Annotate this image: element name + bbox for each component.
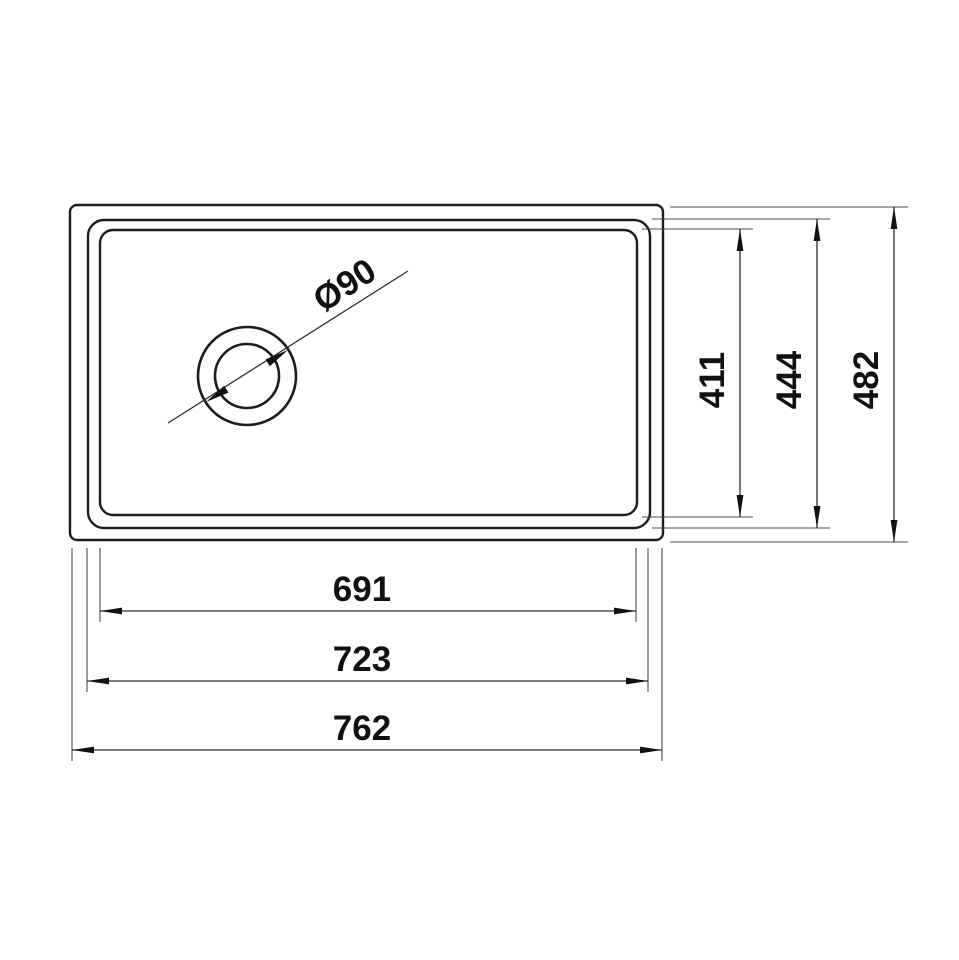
drain-diameter-line [168, 271, 408, 423]
sink-outlines [70, 205, 663, 540]
dim-label-411: 411 [693, 352, 732, 408]
drain-outer-circle [198, 327, 296, 425]
height-dimensions: 411 444 482 [642, 207, 908, 542]
sink-outer-edge-outline [70, 205, 663, 540]
dim-label-723: 723 [333, 640, 391, 679]
dim-label-444: 444 [770, 350, 809, 409]
dim-label-762: 762 [333, 709, 391, 748]
width-dimensions: 691 723 762 [72, 548, 662, 761]
technical-drawing-canvas: Ø90 411 444 482 691 [0, 0, 959, 960]
drain-diameter-label: Ø90 [306, 251, 383, 320]
sink-dimension-drawing: Ø90 411 444 482 691 [0, 0, 959, 960]
drain-group: Ø90 [168, 251, 408, 425]
dim-label-482: 482 [847, 351, 886, 409]
drain-inner-circle [215, 344, 279, 408]
dim-label-691: 691 [333, 570, 391, 609]
